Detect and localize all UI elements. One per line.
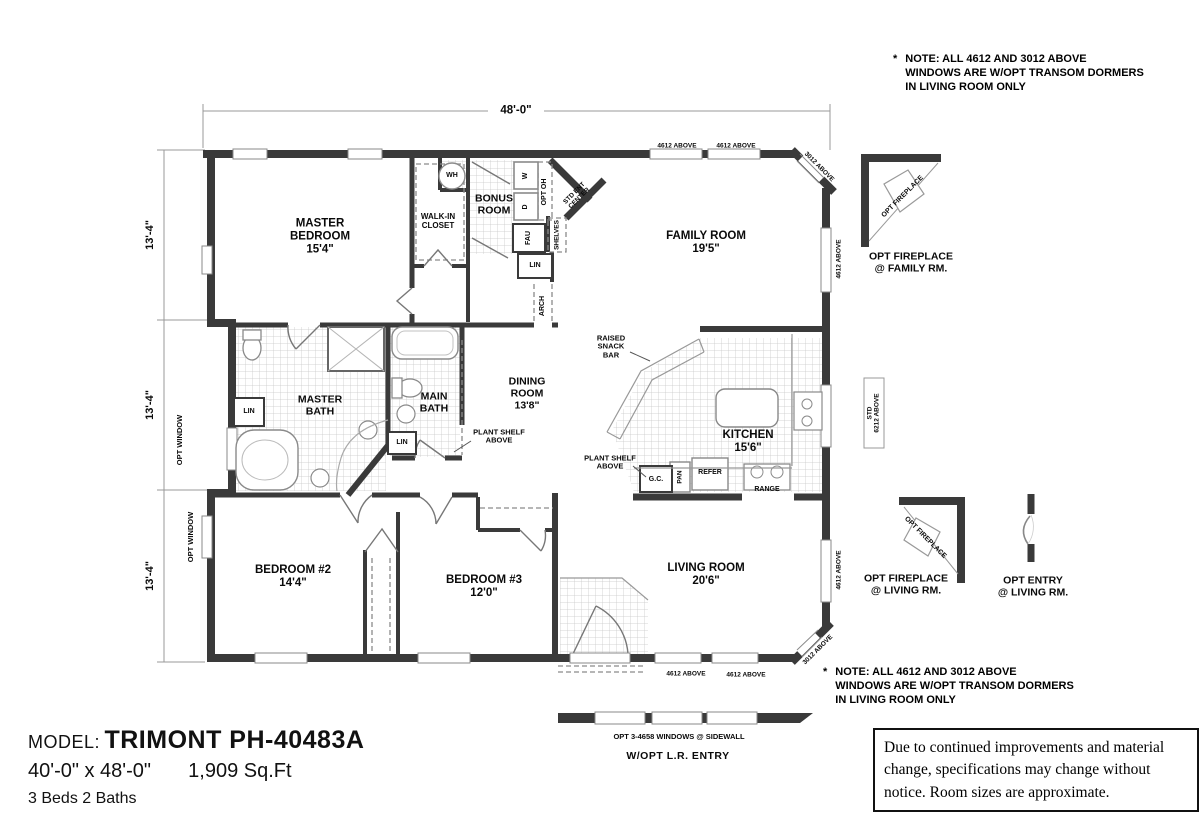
opt-entry-l1: OPT ENTRY (998, 575, 1068, 587)
note-asterisk: * (823, 666, 827, 708)
model-line: MODEL: TRIMONT PH-40483A (28, 726, 364, 755)
model-name: TRIMONT PH-40483A (104, 726, 364, 754)
note-line: NOTE: ALL 4612 AND 3012 ABOVE (835, 666, 1074, 680)
window-4612-bottom-1: 4612 ABOVE (666, 670, 705, 677)
floorplan-page: * NOTE: ALL 4612 AND 3012 ABOVE WINDOWS … (0, 0, 1200, 818)
room-name: KITCHEN (722, 429, 773, 442)
room-size: 14'4" (255, 577, 331, 590)
opt-sidewall-windows-bar (558, 712, 813, 724)
note-line: IN LIVING ROOM ONLY (905, 81, 1144, 95)
room-label-kitchen: KITCHEN 15'6" (722, 429, 773, 455)
square-footage: 1,909 Sq.Ft (188, 760, 291, 782)
room-name: MAIN BATH (414, 391, 454, 415)
dims-line: 40'-0" x 48'-0" 1,909 Sq.Ft (28, 760, 292, 783)
raised-snack-bar-text: RAISED SNACK BAR (590, 334, 632, 359)
room-label-living-room: LIVING ROOM 20'6" (667, 562, 744, 588)
room-name: BEDROOM #2 (255, 564, 331, 577)
plant-shelf-text: PLANT SHELF ABOVE (579, 455, 641, 472)
disclaimer-box: Due to continued improvements and materi… (873, 728, 1199, 812)
overall-dims: 40'-0" x 48'-0" (28, 760, 151, 782)
room-size: 20'6" (667, 575, 744, 588)
opt-entry-living-label: OPT ENTRY @ LIVING RM. (998, 575, 1068, 599)
std-6212-l1: STD (867, 393, 874, 432)
arch-label: ARCH (539, 296, 547, 316)
plant-shelf-dining-label: PLANT SHELF ABOVE (468, 429, 530, 446)
water-heater-label: WH (446, 172, 458, 180)
beds-baths: 3 Beds 2 Baths (28, 790, 137, 808)
dim-width: 48'-0" (500, 105, 531, 118)
room-name: FAMILY ROOM (666, 230, 746, 243)
window-4612-right-family: 4612 ABOVE (835, 239, 842, 278)
room-size: 15'6" (722, 442, 773, 455)
room-name: MASTER BEDROOM (275, 218, 365, 244)
gc-label: G.C. (649, 476, 663, 484)
room-name: BONUS ROOM (470, 193, 518, 217)
room-size: 15'4" (275, 243, 365, 256)
dryer-label: D (522, 204, 530, 209)
note-line: WINDOWS ARE W/OPT TRANSOM DORMERS (905, 67, 1144, 81)
opt-fireplace-family-l1: OPT FIREPLACE (869, 251, 953, 263)
raised-snack-bar-label: RAISED SNACK BAR (590, 334, 632, 359)
room-name: WALK-IN CLOSET (414, 213, 462, 231)
room-label-dining-room: DINING ROOM 13'8" (504, 376, 550, 411)
note-line: NOTE: ALL 4612 AND 3012 ABOVE (905, 53, 1144, 67)
room-label-main-bath: MAIN BATH (414, 391, 454, 415)
opt-fireplace-family-label: OPT FIREPLACE @ FAMILY RM. (869, 251, 953, 275)
opt-fireplace-living-l1: OPT FIREPLACE (864, 573, 948, 585)
room-label-master-bath: MASTER BATH (292, 394, 348, 418)
room-name: MASTER BATH (292, 394, 348, 418)
fau-label: FAU (525, 231, 533, 245)
plant-shelf-text: PLANT SHELF ABOVE (468, 429, 530, 446)
opt-overhead-label: OPT OH (541, 179, 549, 206)
washer-label: W (522, 173, 530, 180)
model-label: MODEL: (28, 732, 100, 752)
opt-lr-entry-label: W/OPT L.R. ENTRY (626, 751, 729, 763)
room-label-bedroom-3: BEDROOM #3 12'0" (446, 574, 522, 600)
window-4612-top-2: 4612 ABOVE (716, 142, 755, 149)
std-6212-l2: 6212 ABOVE (874, 393, 881, 432)
room-name: BEDROOM #3 (446, 574, 522, 587)
opt-fireplace-living-l2: @ LIVING RM. (864, 585, 948, 597)
linen-bonus-label: LIN (529, 262, 540, 270)
linen-main-label: LIN (396, 439, 407, 447)
room-label-bonus-room: BONUS ROOM (470, 193, 518, 217)
std-6212-label: STD 6212 ABOVE (867, 393, 882, 432)
note-bottom: * NOTE: ALL 4612 AND 3012 ABOVE WINDOWS … (823, 666, 1074, 708)
opt-entry-living-detail (1023, 494, 1033, 562)
room-size: 12'0" (446, 587, 522, 600)
room-label-master-bedroom: MASTER BEDROOM 15'4" (275, 218, 365, 257)
note-asterisk: * (893, 53, 897, 95)
opt-fireplace-living-label: OPT FIREPLACE @ LIVING RM. (864, 573, 948, 597)
window-4612-bottom-2: 4612 ABOVE (726, 671, 765, 678)
opt-window-bottom-label: OPT WINDOW (187, 512, 195, 562)
note-top: * NOTE: ALL 4612 AND 3012 ABOVE WINDOWS … (893, 53, 1144, 95)
refrigerator-label: REFER (698, 469, 722, 477)
range-label: RANGE (754, 486, 779, 494)
room-size: 13'8" (504, 400, 550, 412)
room-name: LIVING ROOM (667, 562, 744, 575)
linen-master-label: LIN (243, 408, 254, 416)
note-line: WINDOWS ARE W/OPT TRANSOM DORMERS (835, 680, 1074, 694)
dim-depth-1: 13'-4" (144, 220, 156, 250)
room-name: DINING ROOM (504, 376, 550, 400)
pantry-label: PAN (676, 470, 683, 483)
plant-shelf-kitchen-label: PLANT SHELF ABOVE (579, 455, 641, 472)
room-label-walk-in-closet: WALK-IN CLOSET (414, 213, 462, 231)
opt-fireplace-family-l2: @ FAMILY RM. (869, 263, 953, 275)
room-size: 19'5" (666, 243, 746, 256)
opt-entry-l2: @ LIVING RM. (998, 587, 1068, 599)
opt-sidewall-windows-label: OPT 3-4658 WINDOWS @ SIDEWALL (613, 733, 744, 741)
note-line: IN LIVING ROOM ONLY (835, 694, 1074, 708)
opt-window-mid-label: OPT WINDOW (176, 415, 184, 465)
room-label-family-room: FAMILY ROOM 19'5" (666, 230, 746, 256)
dim-depth-3: 13'-4" (144, 561, 156, 591)
dim-depth-2: 13'-4" (144, 390, 156, 420)
window-4612-right-living: 4612 ABOVE (835, 550, 842, 589)
shelves-label: SHELVES (553, 220, 560, 250)
window-4612-top-1: 4612 ABOVE (657, 142, 696, 149)
room-label-bedroom-2: BEDROOM #2 14'4" (255, 564, 331, 590)
